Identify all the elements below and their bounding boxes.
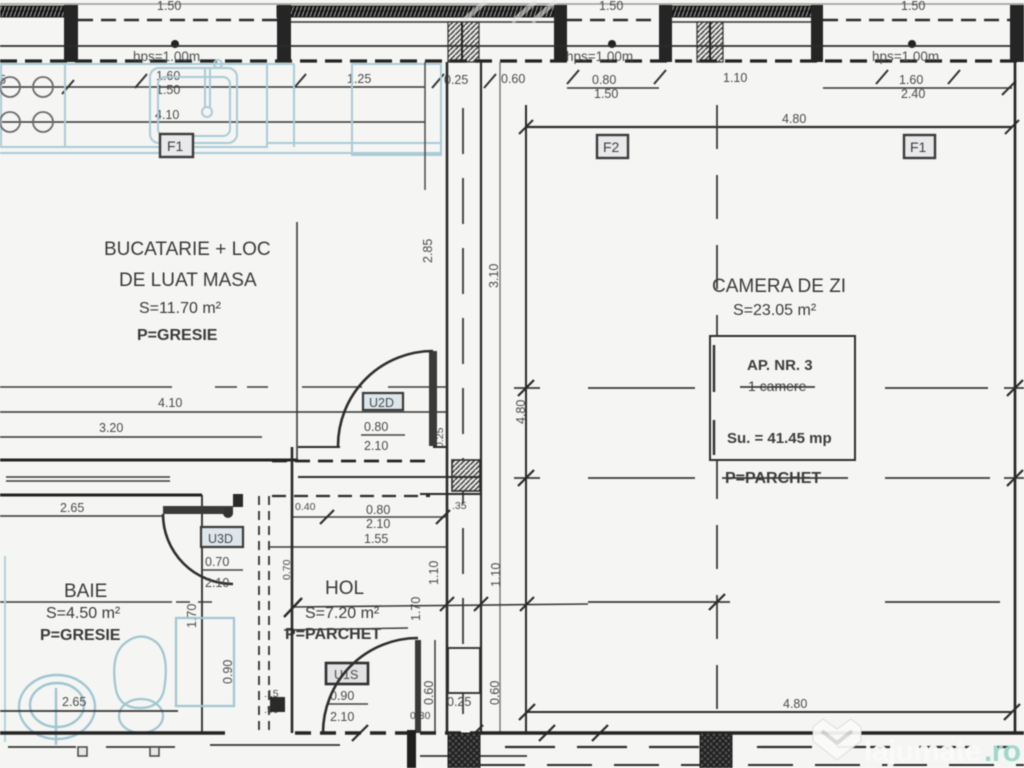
svg-text:1.50: 1.50 <box>156 83 180 97</box>
svg-text:2.65: 2.65 <box>62 695 86 709</box>
svg-text:0.80: 0.80 <box>364 420 388 434</box>
svg-text:F1: F1 <box>910 139 927 155</box>
svg-text:2.65: 2.65 <box>60 501 84 515</box>
svg-text:HOL: HOL <box>325 578 364 599</box>
svg-text:Su. = 41.45 mp: Su. = 41.45 mp <box>727 430 832 447</box>
svg-text:1.10: 1.10 <box>723 71 747 85</box>
svg-text:P=GRESIE: P=GRESIE <box>40 627 121 644</box>
svg-text:2.85: 2.85 <box>421 239 435 263</box>
svg-text:P=PARCHET: P=PARCHET <box>725 470 821 487</box>
svg-text:1.50: 1.50 <box>901 0 925 13</box>
svg-text:4.80: 4.80 <box>783 697 807 711</box>
svg-text:lajumate: lajumate <box>864 735 981 768</box>
svg-text:BUCATARIE + LOC: BUCATARIE + LOC <box>104 239 271 260</box>
svg-text:0.40: 0.40 <box>295 501 316 513</box>
svg-text:0.60: 0.60 <box>501 72 525 86</box>
svg-text:1.50: 1.50 <box>157 0 181 13</box>
svg-text:2.10: 2.10 <box>366 517 390 531</box>
svg-text:F1: F1 <box>167 138 184 154</box>
svg-text:1.10: 1.10 <box>427 561 441 585</box>
svg-text:BAIE: BAIE <box>64 581 107 602</box>
svg-text:0.80: 0.80 <box>366 503 390 517</box>
svg-text:1 camere: 1 camere <box>748 378 807 394</box>
svg-text:F2: F2 <box>603 139 620 155</box>
svg-text:1.25: 1.25 <box>347 72 371 86</box>
svg-text:1.60: 1.60 <box>899 73 923 87</box>
svg-text:1.70: 1.70 <box>185 604 199 628</box>
svg-text:1.55: 1.55 <box>364 532 388 546</box>
svg-text:CAMERA DE ZI: CAMERA DE ZI <box>712 276 846 297</box>
svg-text:1.10: 1.10 <box>489 563 503 587</box>
svg-text:4.10: 4.10 <box>158 396 182 410</box>
svg-text:3.20: 3.20 <box>99 421 123 435</box>
svg-text:0.70: 0.70 <box>205 555 229 569</box>
svg-text:4.80: 4.80 <box>782 112 806 126</box>
svg-text:AP. NR. 3: AP. NR. 3 <box>747 357 813 374</box>
svg-text:S=4.50 m²: S=4.50 m² <box>46 605 121 622</box>
svg-text:1.50: 1.50 <box>594 87 618 101</box>
svg-text:2.40: 2.40 <box>901 87 925 101</box>
svg-text:.35: .35 <box>452 500 467 512</box>
svg-text:4.80: 4.80 <box>514 400 528 424</box>
svg-text:1.70: 1.70 <box>409 597 423 621</box>
svg-text:3.10: 3.10 <box>487 264 501 288</box>
svg-text:0.80: 0.80 <box>592 73 616 87</box>
svg-text:.ro: .ro <box>984 735 1021 768</box>
svg-text:DE LUAT MASA: DE LUAT MASA <box>119 270 257 291</box>
svg-text:U3D: U3D <box>208 532 233 546</box>
svg-text:2.10: 2.10 <box>364 439 388 453</box>
svg-text:P=GRESIE: P=GRESIE <box>137 327 218 344</box>
svg-text:0.25: 0.25 <box>447 695 471 709</box>
svg-text:0.60: 0.60 <box>488 681 502 705</box>
svg-text:U2D: U2D <box>369 396 394 410</box>
svg-text:0.60: 0.60 <box>422 681 436 705</box>
svg-text:hps=1.00m: hps=1.00m <box>566 49 633 64</box>
svg-text:hps=1.00m: hps=1.00m <box>133 49 200 64</box>
svg-text:1.50: 1.50 <box>599 0 623 13</box>
svg-text:hps=1.00m: hps=1.00m <box>872 49 939 64</box>
svg-text:2.10: 2.10 <box>205 576 229 590</box>
svg-text:S=23.05 m²: S=23.05 m² <box>733 302 817 319</box>
svg-text:2.10: 2.10 <box>330 710 354 724</box>
svg-text:S=11.70 m²: S=11.70 m² <box>139 300 222 317</box>
svg-text:0.90: 0.90 <box>221 660 235 684</box>
